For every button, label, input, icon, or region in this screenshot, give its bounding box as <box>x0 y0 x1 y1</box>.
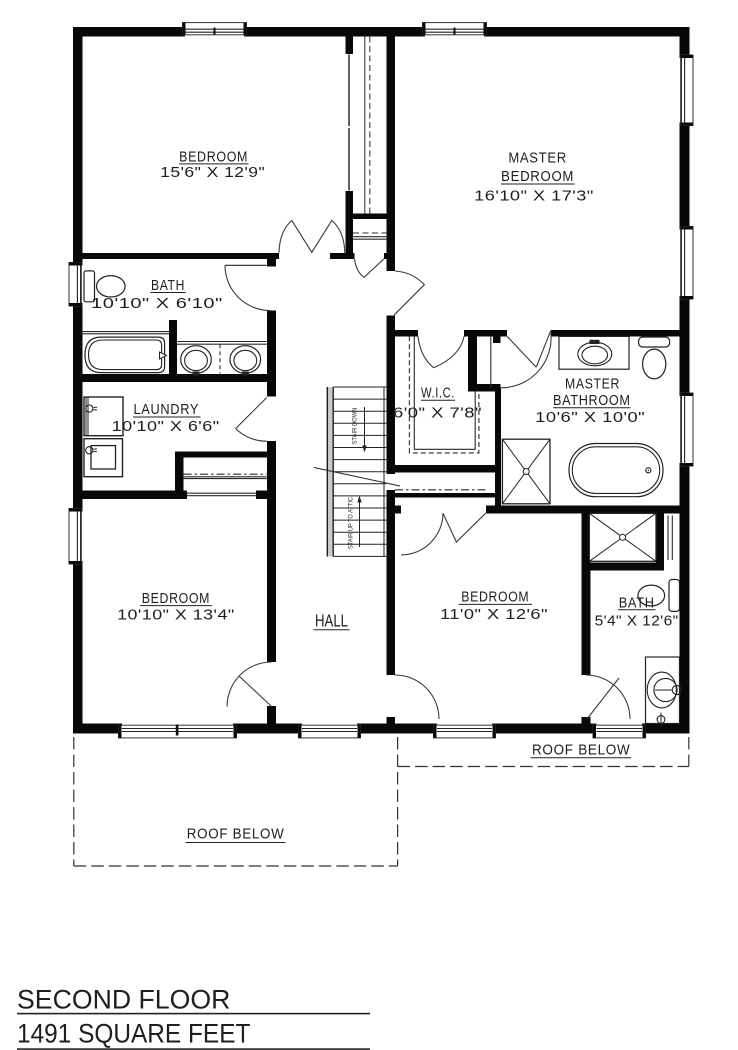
svg-text:ROOF BELOW: ROOF BELOW <box>532 741 630 758</box>
svg-text:BATHROOM: BATHROOM <box>553 392 631 409</box>
svg-text:BEDROOM: BEDROOM <box>179 148 248 165</box>
svg-text:10'10" X 6'6": 10'10" X 6'6" <box>112 418 220 435</box>
svg-text:BEDROOM: BEDROOM <box>142 590 210 607</box>
svg-text:STAIR DOWN: STAIR DOWN <box>353 408 359 445</box>
svg-text:STAIR UP TO ATTIC: STAIR UP TO ATTIC <box>349 496 355 549</box>
svg-text:BATH: BATH <box>619 595 655 612</box>
svg-text:15'6" X 12'9": 15'6" X 12'9" <box>160 164 265 181</box>
svg-text:10'10" X 6'10": 10'10" X 6'10" <box>91 295 223 312</box>
svg-text:10'6" X 10'0": 10'6" X 10'0" <box>535 409 645 426</box>
svg-text:MASTER: MASTER <box>565 375 620 392</box>
svg-text:LAUNDRY: LAUNDRY <box>134 401 200 418</box>
svg-text:MASTER: MASTER <box>508 150 567 167</box>
svg-text:BEDROOM: BEDROOM <box>501 168 574 185</box>
svg-text:W.I.C.: W.I.C. <box>421 385 455 402</box>
svg-text:HALL: HALL <box>315 610 348 630</box>
svg-text:5'4" X 12'6": 5'4" X 12'6" <box>595 612 679 629</box>
svg-text:16'10" X 17'3": 16'10" X 17'3" <box>474 188 594 205</box>
svg-text:SECOND FLOOR: SECOND FLOOR <box>17 984 230 1014</box>
svg-text:10'10" X 13'4": 10'10" X 13'4" <box>117 607 235 624</box>
svg-text:6'0" X 7'8": 6'0" X 7'8" <box>393 405 482 422</box>
svg-text:ROOF BELOW: ROOF BELOW <box>187 826 285 843</box>
svg-text:1491 SQUARE FEET: 1491 SQUARE FEET <box>17 1018 250 1048</box>
svg-text:BEDROOM: BEDROOM <box>461 588 529 605</box>
svg-text:BATH: BATH <box>151 277 185 294</box>
svg-text:11'0" X 12'6": 11'0" X 12'6" <box>440 606 548 623</box>
